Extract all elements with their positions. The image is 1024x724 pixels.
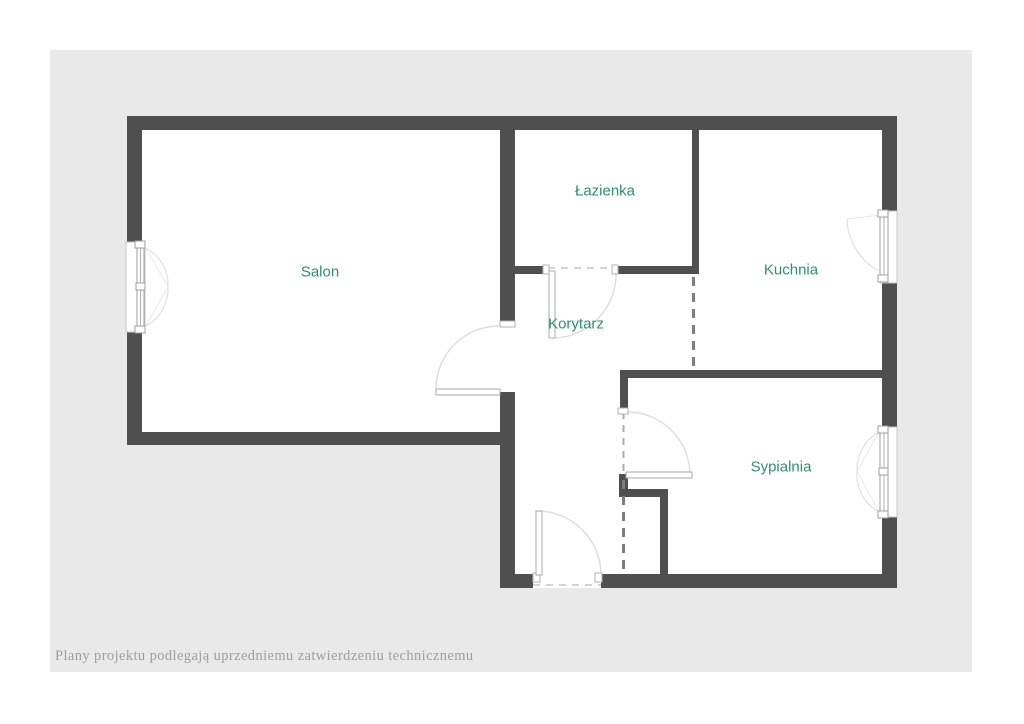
room-label-salon: Salon	[301, 264, 339, 281]
disclaimer-text: Plany projektu podlegają uprzedniemu zat…	[55, 648, 474, 665]
room-label-kuchnia: Kuchnia	[764, 262, 818, 279]
floor-plan	[0, 0, 1024, 724]
room-label-lazienka: Łazienka	[575, 183, 635, 200]
room-label-sypialnia: Sypialnia	[751, 459, 812, 476]
room-label-korytarz: Korytarz	[548, 316, 604, 333]
